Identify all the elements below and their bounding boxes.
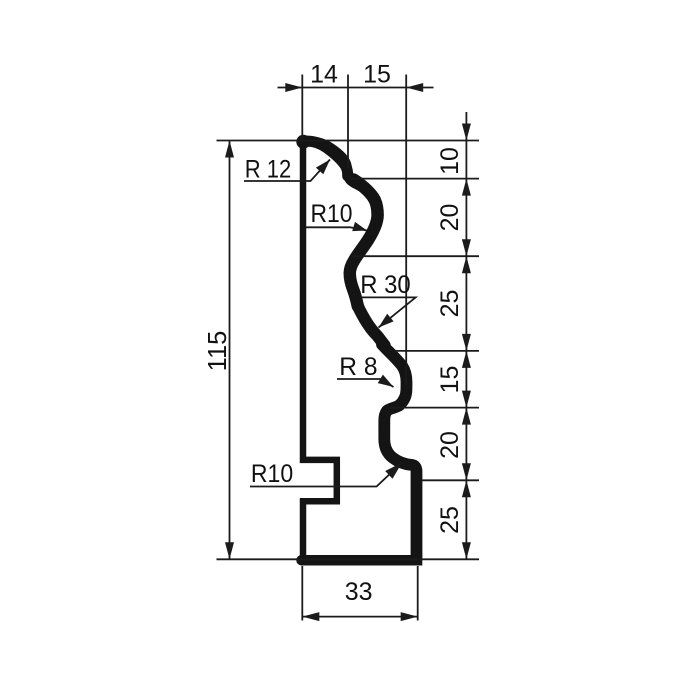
svg-text:33: 33 [345,578,373,606]
svg-text:14: 14 [310,61,338,89]
svg-text:15: 15 [363,61,391,89]
svg-text:115: 115 [204,331,232,372]
svg-text:R10: R10 [251,460,293,488]
svg-text:20: 20 [436,431,464,459]
svg-text:25: 25 [436,290,464,318]
svg-text:25: 25 [436,506,464,534]
svg-text:R 12: R 12 [245,156,291,184]
svg-text:10: 10 [436,147,464,175]
svg-text:15: 15 [436,366,464,394]
svg-text:R 30: R 30 [360,271,411,299]
svg-text:20: 20 [436,204,464,232]
svg-text:R10: R10 [311,200,353,228]
svg-text:R 8: R 8 [339,353,377,381]
